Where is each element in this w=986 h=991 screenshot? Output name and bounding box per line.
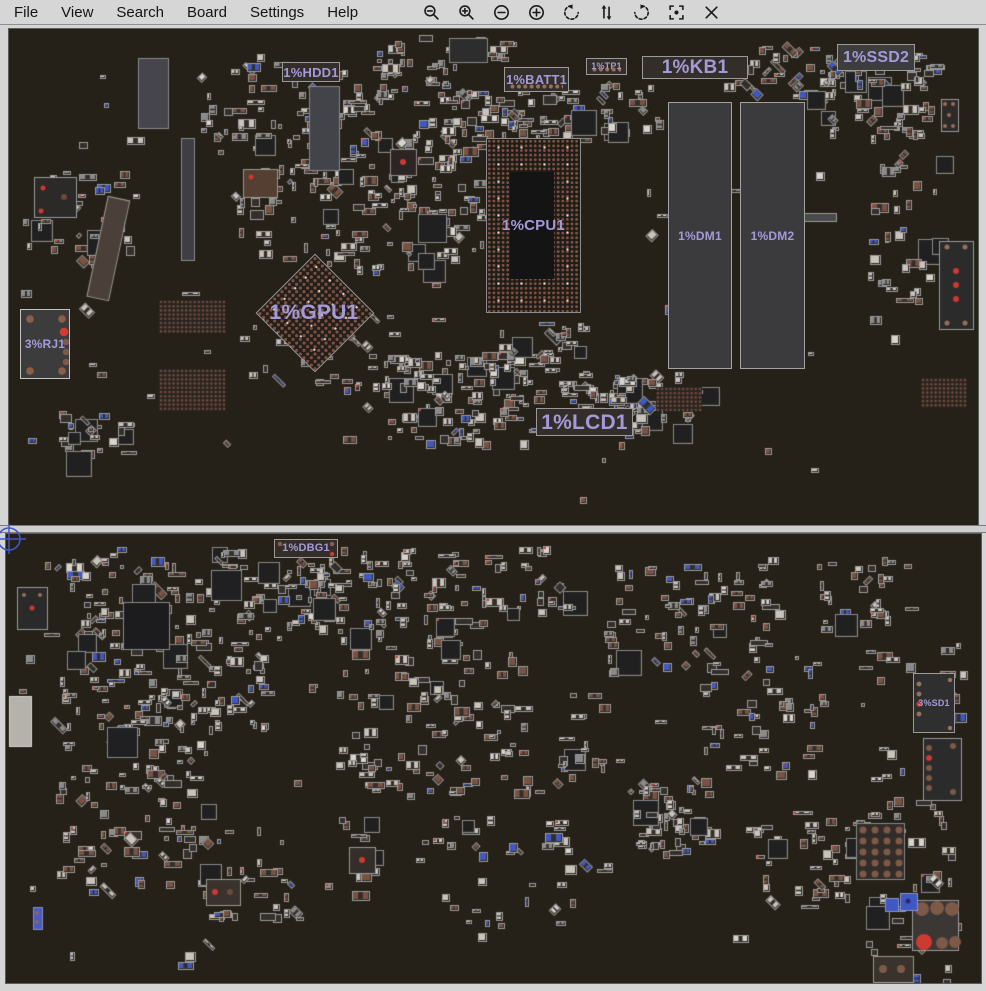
menu-view[interactable]: View [51,2,103,23]
component-tp1[interactable]: 1%TP1 [586,58,627,75]
component-label: 1%DM2 [741,230,804,242]
board-view-bottom[interactable]: 1%DBG13%SD1 [5,533,982,984]
menu-search[interactable]: Search [106,2,174,23]
menu-items: FileViewSearchBoardSettingsHelp [4,2,371,23]
component-label: 1%TP1 [587,62,626,71]
close-icon[interactable] [703,4,720,21]
add-circle-icon[interactable] [528,4,545,21]
menu-board[interactable]: Board [177,2,237,23]
app-window: { "menubar": { "items": ["File", "View",… [0,0,986,991]
component-dm2[interactable]: 1%DM2 [740,102,805,369]
component-hdd1[interactable]: 1%HDD1 [282,62,340,82]
zoom-out-icon[interactable] [423,4,440,21]
component-label: 1%DBG1 [275,543,337,554]
flip-vertical-icon[interactable] [598,4,615,21]
component-lcd1[interactable]: 1%LCD1 [536,408,633,436]
panel-divider[interactable] [0,525,986,533]
rotate-cw-icon[interactable] [633,4,650,21]
pcb-canvas-bottom[interactable] [6,534,981,983]
component-label: 1%GPU1 [256,302,372,323]
menu-help[interactable]: Help [317,2,368,23]
component-rj1[interactable]: 3%RJ1 [20,309,70,379]
component-label: 3%SD1 [914,699,954,708]
component-batt1[interactable]: 1%BATT1 [504,67,569,92]
menu-settings[interactable]: Settings [240,2,314,23]
component-label: 1%KB1 [643,58,747,77]
component-label: 1%DM1 [669,230,731,242]
component-label: 1%CPU1 [487,218,580,233]
center-focus-icon[interactable] [668,4,685,21]
rotate-ccw-icon[interactable] [563,4,580,21]
menu-file[interactable]: File [4,2,48,23]
component-gpu1[interactable]: 1%GPU1 [256,254,372,370]
component-label: 3%RJ1 [21,338,69,350]
component-cpu1[interactable]: 1%CPU1 [486,138,581,313]
board-view-top[interactable]: 1%HDD11%BATT11%TP11%KB11%SSD21%CPU11%DM1… [8,28,979,526]
component-label: 1%BATT1 [505,73,568,86]
toolbar [423,4,720,21]
zoom-in-icon[interactable] [458,4,475,21]
component-dbg1[interactable]: 1%DBG1 [274,539,338,558]
component-label: 1%SSD2 [838,50,914,66]
menubar: FileViewSearchBoardSettingsHelp [0,0,986,25]
component-kb1[interactable]: 1%KB1 [642,56,748,79]
component-dm1[interactable]: 1%DM1 [668,102,732,369]
remove-circle-icon[interactable] [493,4,510,21]
component-sd1[interactable]: 3%SD1 [913,673,955,733]
component-label: 1%LCD1 [537,412,632,433]
component-label: 1%HDD1 [283,66,339,79]
component-ssd2[interactable]: 1%SSD2 [837,44,915,71]
